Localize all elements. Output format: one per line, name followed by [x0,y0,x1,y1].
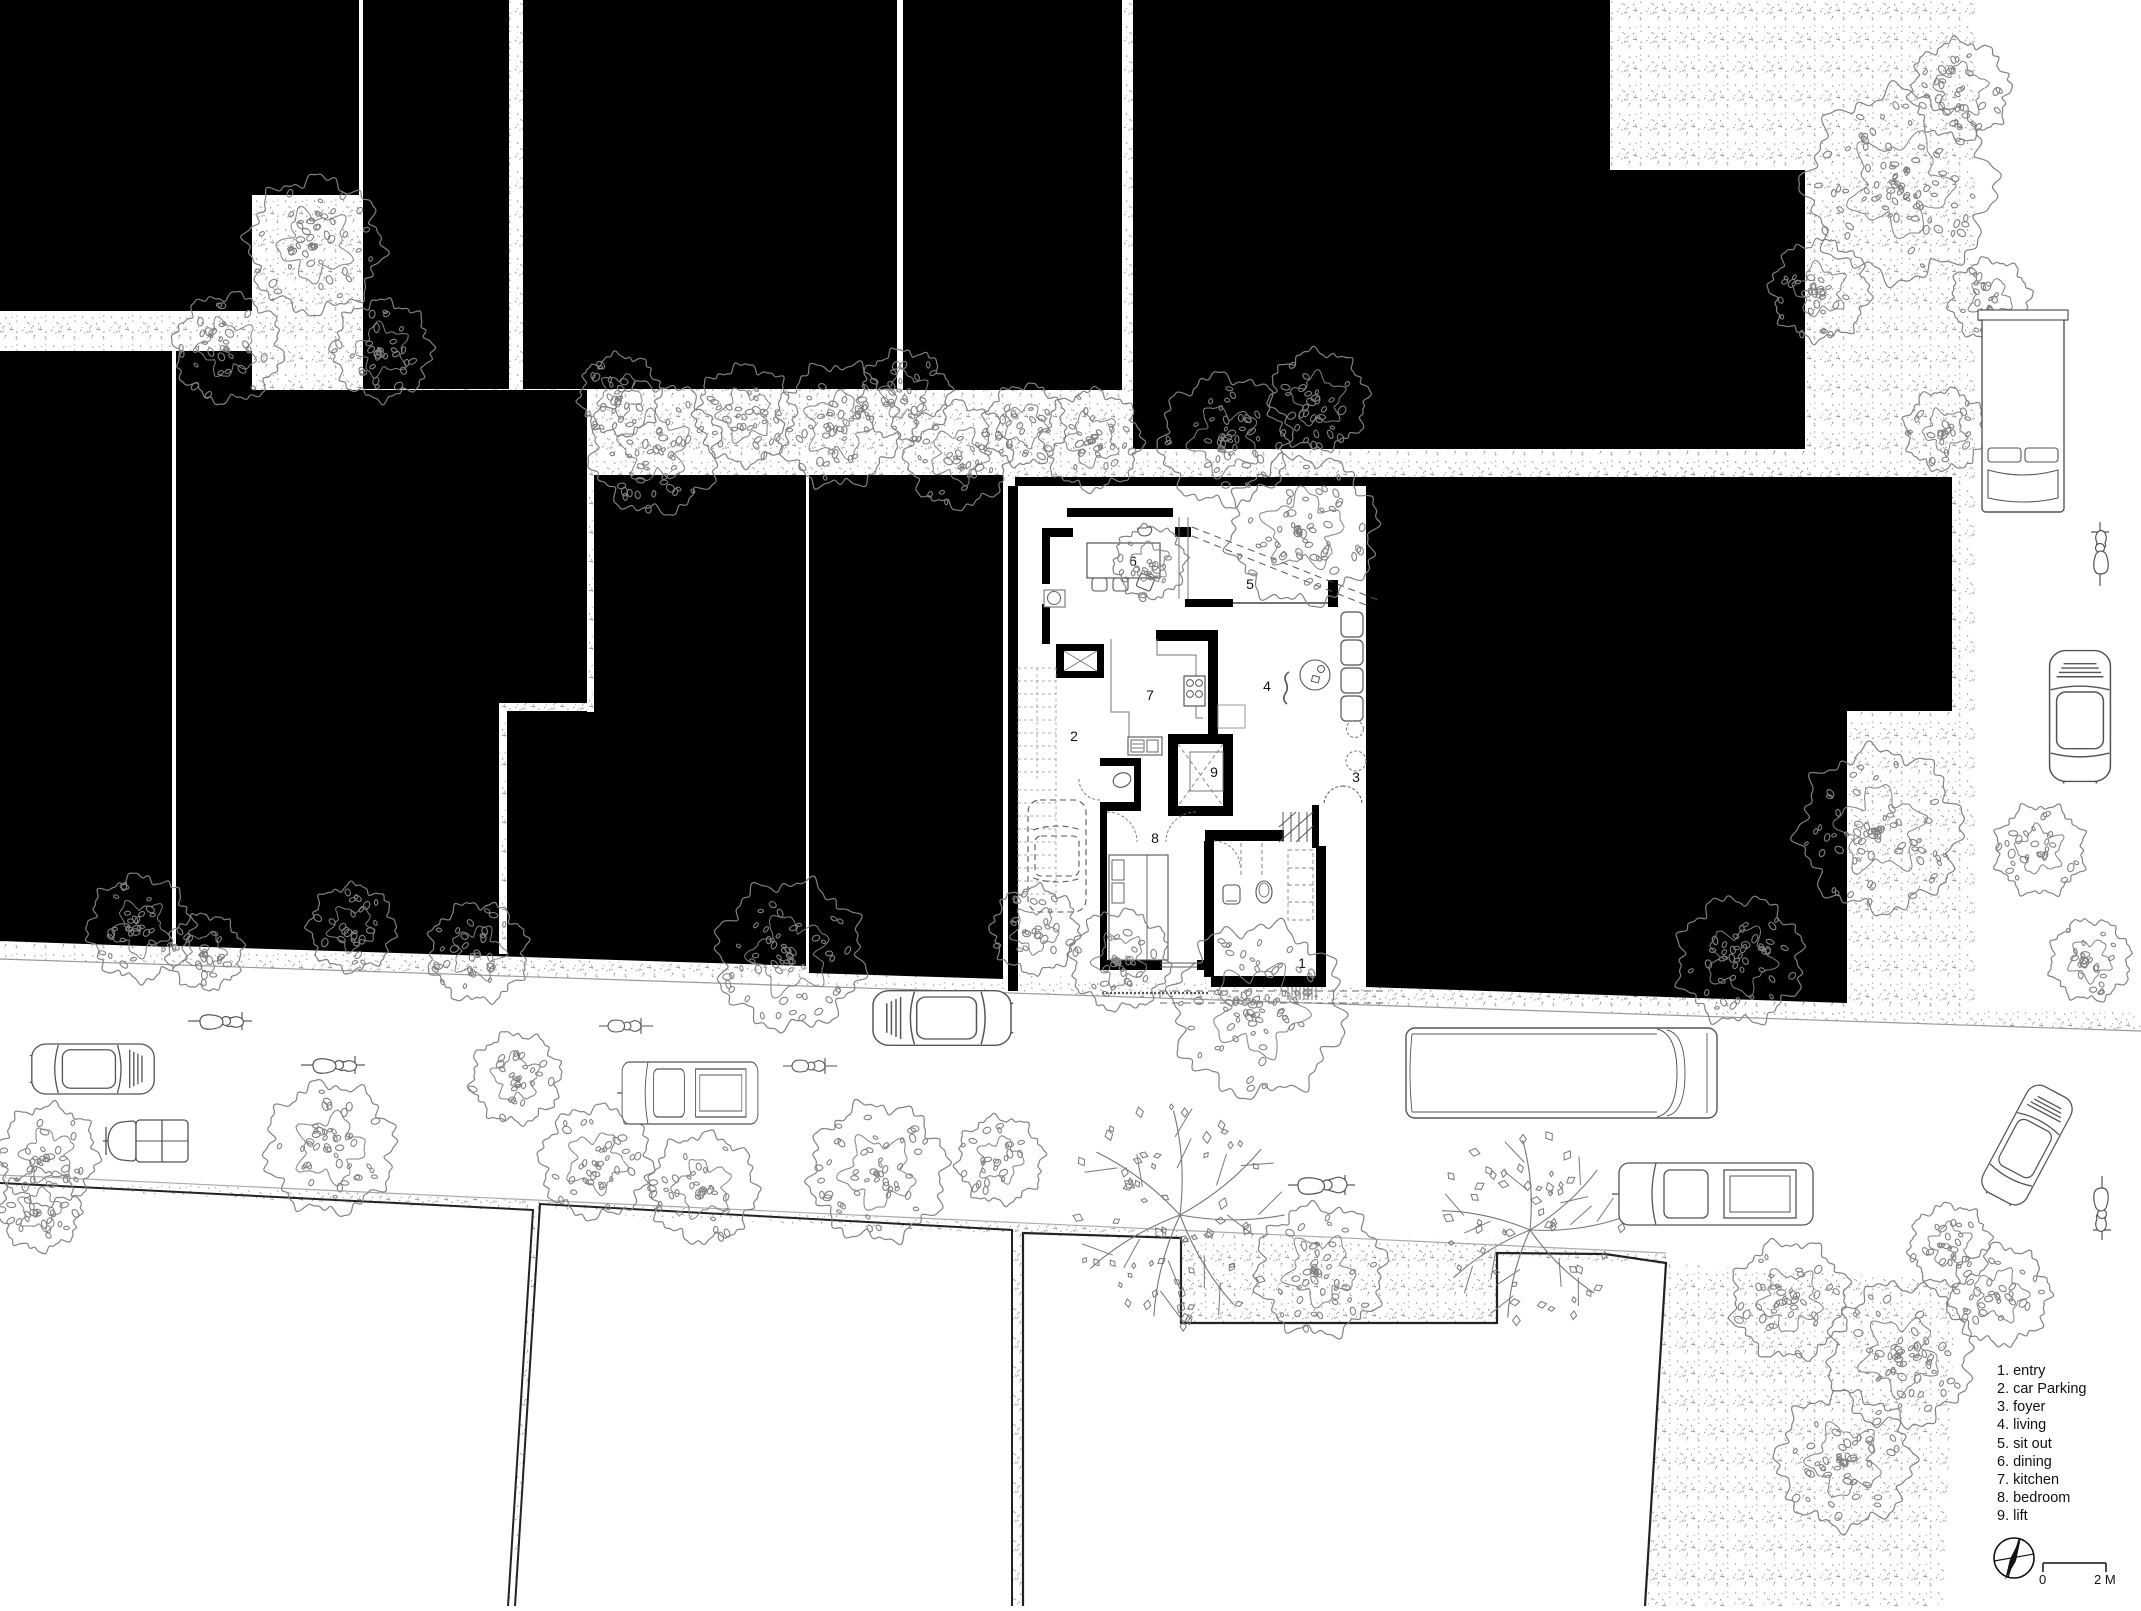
svg-text:0: 0 [2039,1572,2046,1587]
svg-text:7: 7 [1146,687,1154,703]
svg-text:1: 1 [1298,955,1306,971]
svg-text:4: 4 [1263,678,1271,694]
svg-text:2 M: 2 M [2094,1572,2116,1587]
svg-text:5. sit out: 5. sit out [1997,1436,2052,1452]
svg-text:6. dining: 6. dining [1997,1454,2052,1470]
svg-text:3. foyer: 3. foyer [1997,1399,2046,1415]
svg-text:2. car Parking: 2. car Parking [1997,1381,2086,1397]
svg-text:9: 9 [1210,764,1218,780]
svg-text:3: 3 [1352,769,1360,785]
svg-text:5: 5 [1246,576,1254,592]
svg-text:1. entry: 1. entry [1997,1363,2046,1379]
svg-text:2: 2 [1070,728,1078,744]
svg-text:9. lift: 9. lift [1997,1508,2028,1524]
svg-text:7. kitchen: 7. kitchen [1997,1472,2059,1488]
svg-text:8. bedroom: 8. bedroom [1997,1490,2070,1506]
svg-text:8: 8 [1151,830,1159,846]
svg-text:4. living: 4. living [1997,1417,2046,1433]
